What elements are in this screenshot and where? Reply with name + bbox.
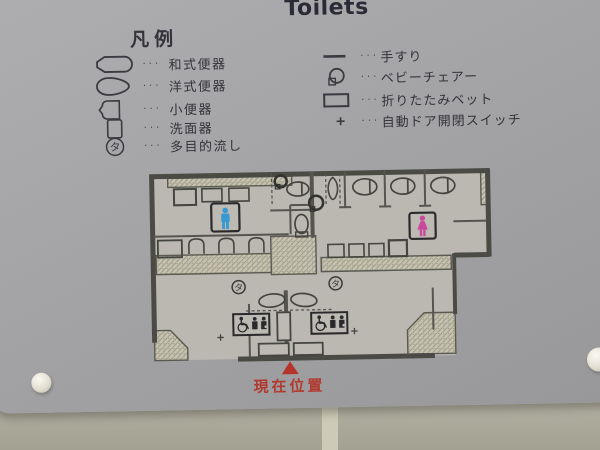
svg-text:タ: タ [234,283,243,294]
page-title: Toilets [246,0,406,22]
sign-panel: Toilets 凡例 ··· 和式便器 ··· 洋式便器 [0,0,600,414]
womens-room-symbol [409,213,435,239]
floor-plan: タ タ [139,156,503,378]
legend-item-western-toilet: ··· 洋式便器 [94,73,227,97]
legend-item-baby-chair: ··· ベビーチェアー [318,64,479,89]
current-location-marker [282,361,299,374]
multipurpose-sink-icon: タ [95,136,135,158]
legend-dots: ··· [144,140,170,151]
legend-dots: ··· [360,50,380,61]
legend-item-label: 手すり [380,45,422,65]
folding-bed-icon [318,90,354,111]
legend-dots: ··· [143,103,169,114]
mounting-bolt-left-icon [31,373,51,393]
legend-item-label: 洋式便器 [169,75,227,95]
legend-item-label: 自動ドア開閉スイッチ [381,108,521,130]
squat-toilet-icon [93,54,133,75]
sign-photo: Toilets 凡例 ··· 和式便器 ··· 洋式便器 [0,0,600,450]
current-location-label: 現在位置 [253,374,353,397]
legend-dots: ··· [143,80,169,91]
mounting-bolt-right-icon [587,347,600,371]
auto-door-switch-icon [318,111,354,132]
legend-dots: ··· [144,122,170,133]
svg-text:タ: タ [331,279,340,290]
legend-item-label: 折りたたみベット [381,88,493,109]
legend-item-label: ベビーチェアー [381,65,479,86]
legend-item-label: 和式便器 [168,53,226,73]
legend-dots: ··· [361,94,381,105]
western-toilet-icon [94,75,134,98]
legend-item-squat-toilet: ··· 和式便器 [93,51,226,75]
legend-dots: ··· [142,58,168,69]
legend-header: 凡例 [130,24,179,52]
accessible-room-symbol-right [311,312,347,334]
handrail-icon [317,46,353,67]
legend-item-multipurpose-sink: タ ··· 多目的流し [95,133,243,158]
legend-item-label: 多目的流し [170,135,243,155]
baby-chair-icon [318,66,354,89]
legend-item-auto-door-switch: ··· 自動ドア開閉スイッチ [318,107,521,133]
legend-dots: ··· [361,71,381,82]
mens-room-symbol [211,203,240,232]
accessible-room-symbol-left [233,314,269,336]
multipurpose-symbol: タ [109,140,120,153]
legend-dots: ··· [362,115,382,126]
